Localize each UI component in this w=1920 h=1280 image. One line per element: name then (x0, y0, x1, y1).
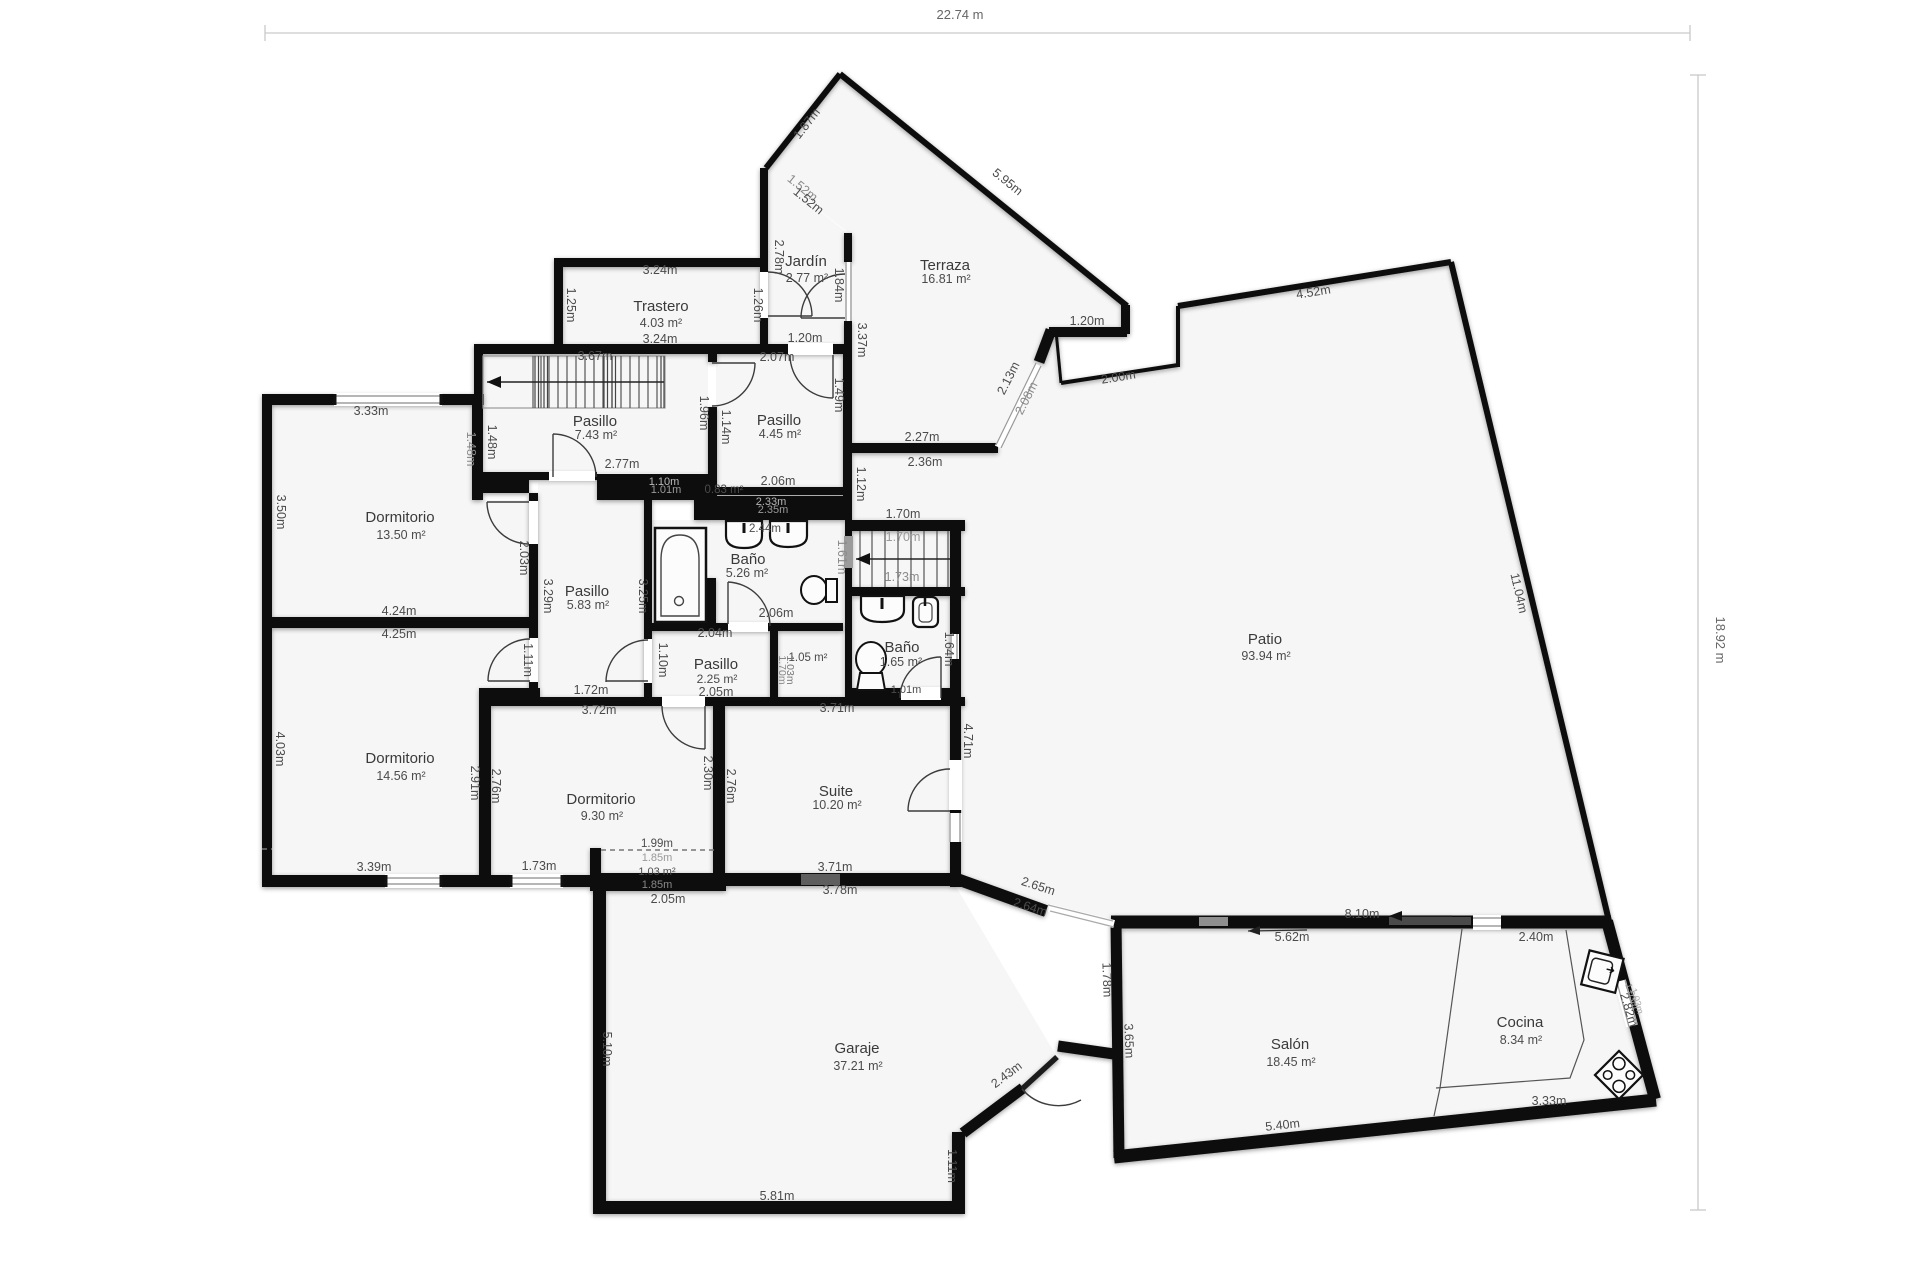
svg-text:1.01m: 1.01m (651, 484, 682, 496)
svg-text:3.67m: 3.67m (578, 349, 613, 363)
svg-text:1.25m: 1.25m (564, 288, 578, 323)
svg-text:1.20m: 1.20m (788, 331, 823, 345)
svg-text:1.70m: 1.70m (886, 507, 921, 521)
svg-text:4.45 m²: 4.45 m² (759, 427, 801, 441)
svg-text:Trastero: Trastero (633, 298, 688, 315)
svg-text:16.81 m²: 16.81 m² (921, 272, 970, 286)
svg-text:Baño: Baño (884, 639, 919, 656)
svg-text:3.39m: 3.39m (357, 860, 392, 874)
svg-text:22.74 m: 22.74 m (937, 7, 984, 22)
svg-text:2.78m: 2.78m (772, 240, 786, 275)
svg-text:2.25 m²: 2.25 m² (697, 672, 738, 686)
svg-text:4.03m: 4.03m (273, 732, 287, 767)
svg-text:3.33m: 3.33m (354, 404, 389, 418)
svg-text:1.26m: 1.26m (751, 288, 765, 323)
svg-text:2.27m: 2.27m (905, 430, 940, 444)
svg-text:18.92 m: 18.92 m (1713, 617, 1728, 664)
svg-text:3.25m: 3.25m (636, 579, 650, 614)
svg-text:3.33m: 3.33m (1532, 1094, 1567, 1108)
svg-text:8.10m: 8.10m (1345, 907, 1380, 921)
svg-text:1.65 m²: 1.65 m² (880, 655, 922, 669)
svg-text:5.62m: 5.62m (1275, 930, 1310, 944)
svg-text:1.01m: 1.01m (891, 684, 922, 696)
svg-text:4.25m: 4.25m (382, 627, 417, 641)
svg-text:2.40m: 2.40m (1519, 930, 1554, 944)
svg-text:1.12m: 1.12m (854, 467, 868, 502)
svg-text:18.45 m²: 18.45 m² (1266, 1055, 1315, 1069)
svg-text:2.76m: 2.76m (489, 769, 503, 804)
svg-text:3.24m: 3.24m (643, 263, 678, 277)
svg-text:8.34 m²: 8.34 m² (1500, 1033, 1542, 1047)
svg-text:37.21 m²: 37.21 m² (833, 1059, 882, 1073)
svg-text:2.76m: 2.76m (724, 769, 738, 804)
svg-text:93.94 m²: 93.94 m² (1241, 649, 1290, 663)
svg-text:2.06m: 2.06m (759, 606, 794, 620)
svg-text:Dormitorio: Dormitorio (365, 750, 434, 767)
svg-text:7.43 m²: 7.43 m² (575, 428, 617, 442)
svg-text:1.03m: 1.03m (784, 655, 796, 684)
svg-text:3.71m: 3.71m (818, 860, 853, 874)
svg-text:Cocina: Cocina (1497, 1014, 1544, 1031)
svg-text:10.20 m²: 10.20 m² (812, 798, 861, 812)
svg-text:1.70m: 1.70m (886, 530, 921, 544)
svg-text:1.64m: 1.64m (942, 632, 956, 667)
svg-text:1.14m: 1.14m (719, 410, 733, 445)
svg-text:2.05m: 2.05m (651, 892, 686, 906)
svg-text:1.73m: 1.73m (522, 859, 557, 873)
svg-text:3.37m: 3.37m (855, 323, 869, 358)
svg-text:Patio: Patio (1248, 631, 1282, 648)
svg-text:Salón: Salón (1271, 1036, 1309, 1053)
svg-text:1.85m: 1.85m (642, 852, 673, 864)
svg-text:1.11m: 1.11m (521, 643, 535, 677)
svg-text:5.10m: 5.10m (600, 1032, 614, 1067)
svg-text:14.56 m²: 14.56 m² (376, 769, 425, 783)
svg-text:3.65m: 3.65m (1121, 1023, 1136, 1058)
svg-text:Dormitorio: Dormitorio (365, 509, 434, 526)
svg-text:4.03 m²: 4.03 m² (640, 316, 682, 330)
svg-text:0.83 m²: 0.83 m² (705, 484, 744, 496)
svg-text:2.91m: 2.91m (468, 766, 482, 801)
svg-text:1.84m: 1.84m (832, 268, 846, 303)
svg-text:3.71m: 3.71m (820, 701, 855, 715)
svg-text:1.99m: 1.99m (641, 838, 673, 850)
svg-text:2.77m: 2.77m (605, 457, 640, 471)
svg-text:1.49m: 1.49m (832, 378, 846, 413)
svg-text:2.77 m²: 2.77 m² (786, 271, 828, 285)
svg-text:1.73m: 1.73m (885, 570, 920, 584)
svg-text:Jardín: Jardín (785, 253, 827, 270)
svg-text:2.07m: 2.07m (760, 350, 795, 364)
svg-text:1.61m: 1.61m (835, 540, 849, 575)
svg-text:3.24m: 3.24m (643, 332, 678, 346)
svg-text:2.06m: 2.06m (761, 474, 796, 488)
svg-text:Garaje: Garaje (834, 1040, 879, 1057)
svg-text:2.44m: 2.44m (749, 523, 781, 535)
svg-text:2.05m: 2.05m (699, 685, 734, 699)
svg-text:2.30m: 2.30m (701, 756, 715, 791)
svg-text:5.83 m²: 5.83 m² (567, 598, 609, 612)
svg-text:1.48m: 1.48m (464, 432, 478, 467)
svg-text:5.26 m²: 5.26 m² (726, 566, 768, 580)
svg-text:13.50 m²: 13.50 m² (376, 528, 425, 542)
svg-text:2.04m: 2.04m (698, 626, 733, 640)
svg-text:2.36m: 2.36m (908, 455, 943, 469)
svg-text:4.24m: 4.24m (382, 604, 417, 618)
svg-text:Dormitorio: Dormitorio (566, 791, 635, 808)
svg-text:1.72m: 1.72m (574, 683, 609, 697)
svg-text:3.29m: 3.29m (541, 579, 555, 614)
svg-text:2.35m: 2.35m (758, 504, 789, 516)
svg-text:1.48m: 1.48m (485, 425, 499, 460)
svg-text:3.72m: 3.72m (582, 703, 617, 717)
svg-text:1.11m: 1.11m (945, 1149, 959, 1183)
svg-text:4.71m: 4.71m (961, 724, 975, 759)
svg-text:1.20m: 1.20m (1070, 314, 1105, 328)
svg-text:3.50m: 3.50m (274, 495, 288, 530)
svg-text:Pasillo: Pasillo (694, 656, 738, 673)
svg-text:3.78m: 3.78m (823, 883, 858, 897)
svg-text:1.03 m²: 1.03 m² (638, 866, 676, 878)
svg-text:5.81m: 5.81m (760, 1189, 795, 1203)
svg-text:1.10m: 1.10m (656, 643, 670, 678)
svg-text:1.85m: 1.85m (642, 879, 673, 891)
svg-text:1.78m: 1.78m (1099, 962, 1114, 997)
svg-text:9.30 m²: 9.30 m² (581, 809, 623, 823)
svg-text:2.03m: 2.03m (517, 541, 531, 576)
svg-text:1.96m: 1.96m (697, 396, 711, 431)
